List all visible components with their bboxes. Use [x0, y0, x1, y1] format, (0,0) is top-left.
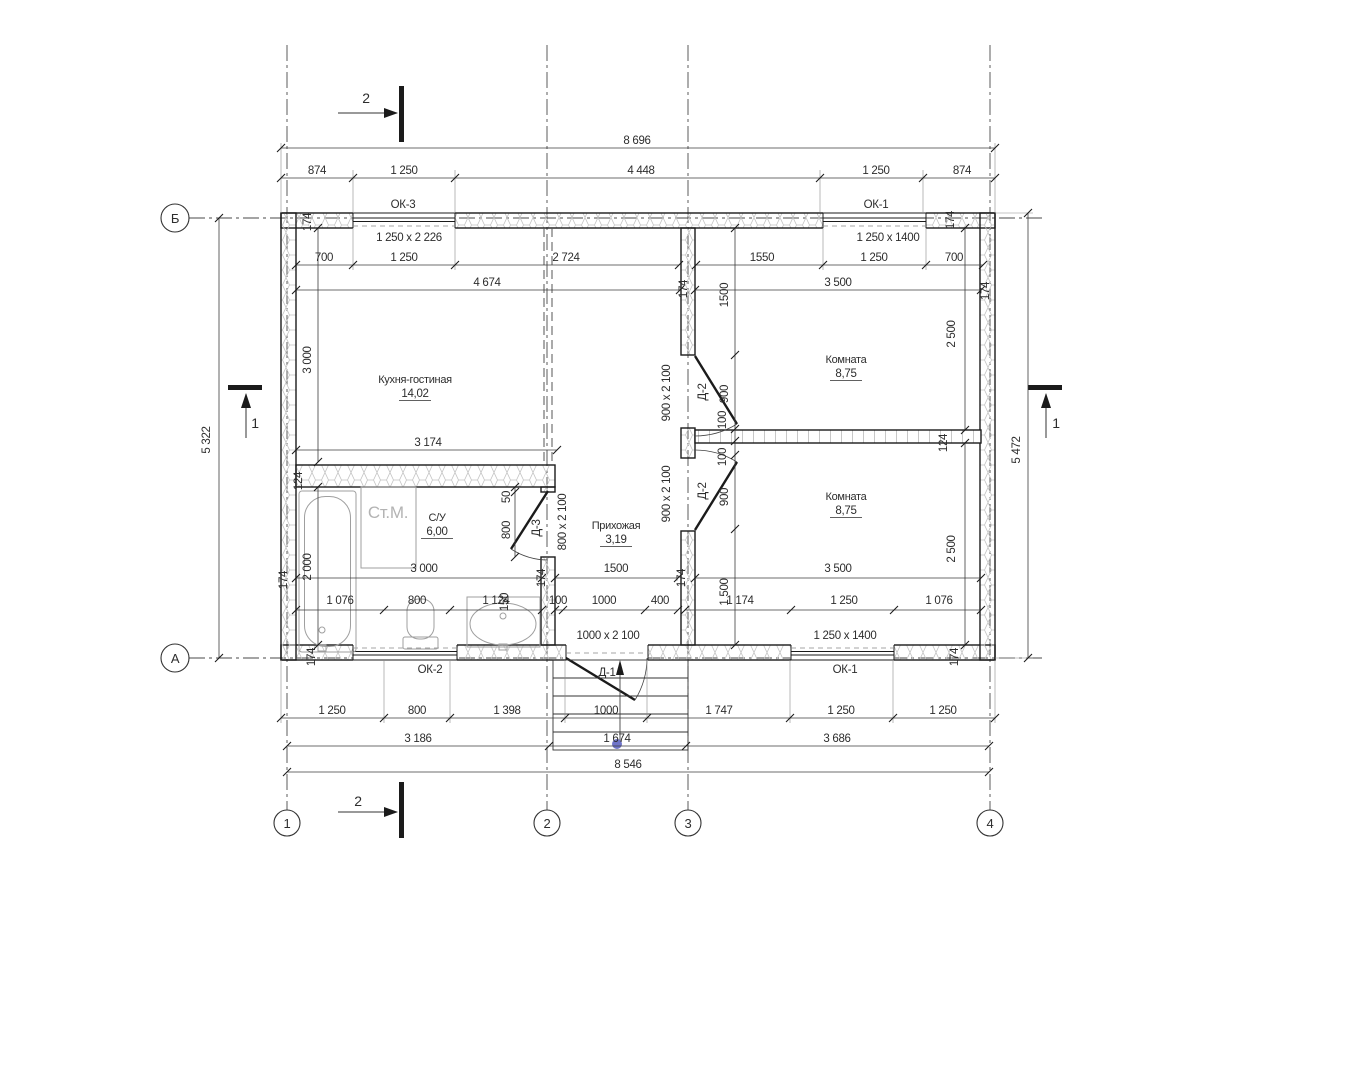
walls [281, 213, 995, 660]
dim: 3 500 [824, 277, 851, 289]
dim: 1 076 [925, 595, 952, 607]
dim: 100 [717, 411, 729, 429]
dim: 4 448 [627, 165, 654, 177]
dim-overall-left: 5 322 [201, 426, 213, 453]
dim: 1500 [604, 563, 628, 575]
dim: 874 [953, 165, 972, 177]
room-name-kitchen: Кухня-гостиная [378, 374, 452, 386]
axis-label: 4 [987, 816, 994, 831]
dim: 700 [315, 252, 333, 264]
door-size: 900 x 2 100 [661, 365, 673, 422]
section-mark-2-bottom [338, 782, 404, 838]
dim-overall-bottom: 8 546 [614, 759, 641, 771]
dim: 3 500 [824, 563, 851, 575]
dim: 900 [719, 488, 731, 506]
dim: 1 747 [705, 705, 732, 717]
dim-wall: 124 [938, 433, 950, 452]
dim-wall: 174 [678, 279, 690, 298]
axis-label: А [171, 651, 180, 666]
section-label: 1 [1052, 415, 1060, 431]
door-tag: Д-2 [697, 383, 709, 400]
dim: 1500 [719, 283, 731, 307]
fixture-label-wm: Ст.М. [368, 503, 408, 522]
room-name-bedroom2: Комната [826, 491, 868, 503]
axis-label: Б [171, 211, 179, 226]
room-area-hall: 3,19 [605, 534, 626, 546]
dim-wall: 174 [980, 281, 992, 300]
dim: 100 [717, 448, 729, 466]
dim: 1 250 [862, 165, 889, 177]
dashed-divider [544, 228, 552, 464]
window-tag-ok1-top: ОК-1 [864, 199, 889, 211]
dim-overall-right: 5 472 [1011, 436, 1023, 463]
dim: 1 250 [390, 252, 417, 264]
wall-axis3-mid [681, 428, 695, 458]
dim: 800 [501, 521, 513, 539]
room-name-hall: Прихожая [592, 520, 641, 532]
dim: 100 [549, 595, 567, 607]
room-name-bedroom1: Комната [826, 354, 868, 366]
dim: 1 250 [318, 705, 345, 717]
window-tag-ok2: ОК-2 [418, 664, 443, 676]
wall-left [281, 213, 296, 660]
dim: 2 000 [302, 553, 314, 580]
wall-right [980, 213, 995, 660]
dim: 1 076 [326, 595, 353, 607]
dim: 4 674 [473, 277, 501, 289]
section-label: 2 [354, 793, 362, 809]
wall-kitchen-bath [296, 465, 555, 487]
window-tag-ok3: ОК-3 [391, 199, 416, 211]
dim: 2 724 [552, 252, 580, 264]
axis-lines [189, 45, 1042, 810]
dim-wall: 174 [536, 568, 548, 587]
dim: 3 186 [404, 733, 431, 745]
dim: 2 500 [946, 320, 958, 347]
dim: 1 250 [929, 705, 956, 717]
washing-machine [361, 487, 416, 568]
room-area-bath: 6,00 [426, 526, 447, 538]
door-tag: Д-2 [697, 482, 709, 499]
dim: 874 [308, 165, 327, 177]
room-area-kitchen: 14,02 [401, 388, 428, 400]
dim: 700 [945, 252, 963, 264]
section-mark-2-top [338, 86, 404, 142]
dim: 3 000 [302, 346, 314, 373]
dim: 1000 [594, 705, 618, 717]
dim: 1 674 [603, 733, 631, 745]
room-name-bath: С/У [428, 512, 446, 524]
door-size: 800 x 2 100 [557, 494, 569, 551]
doors [511, 356, 737, 744]
dim-overall-top: 8 696 [623, 135, 650, 147]
dim: 400 [651, 595, 669, 607]
window-tag-ok1-bottom: ОК-1 [833, 664, 858, 676]
axis-label: 1 [284, 816, 291, 831]
text-labels: 8 6968741 2504 4481 250874ОК-3ОК-11 250 … [171, 90, 1060, 831]
dim: 900 [719, 385, 731, 403]
room-area-bedroom2: 8,75 [835, 505, 856, 517]
door-size-d1: 1000 x 2 100 [577, 630, 640, 642]
dim-wall: 174 [306, 647, 318, 666]
dim: 1 250 [860, 252, 887, 264]
dim: 1 250 [827, 705, 854, 717]
window-size-ok3: 1 250 x 2 226 [376, 232, 442, 244]
dim: 1 250 [830, 595, 857, 607]
dim: 50 [501, 491, 513, 503]
dim: 800 [408, 595, 426, 607]
dim-wall: 174 [945, 210, 957, 229]
door-tag-d1: Д-1 [598, 667, 615, 679]
section-label: 2 [362, 90, 370, 106]
floor-plan-svg: 8 6968741 2504 4481 250874ОК-3ОК-11 250 … [0, 0, 1347, 1080]
window-size-ok1-bottom: 1 250 x 1400 [814, 630, 877, 642]
dim: 1 174 [726, 595, 754, 607]
window-size-ok1-top: 1 250 x 1400 [857, 232, 920, 244]
dim: 3 174 [414, 437, 442, 449]
axis-label: 2 [544, 816, 551, 831]
dim: 3 000 [410, 563, 437, 575]
door-tag: Д-3 [531, 519, 543, 536]
dim: 1 250 [390, 165, 417, 177]
door-size: 900 x 2 100 [661, 466, 673, 523]
dim-wall: 174 [302, 212, 314, 231]
floor-plan-canvas: 8 6968741 2504 4481 250874ОК-3ОК-11 250 … [0, 0, 1347, 1080]
dim-wall: 174 [949, 647, 961, 666]
dim-wall: 124 [293, 471, 305, 490]
section-label: 1 [251, 415, 259, 431]
dim: 1000 [592, 595, 616, 607]
dim: 3 686 [823, 733, 850, 745]
dim: 2 500 [946, 535, 958, 562]
dim-wall: 174 [676, 568, 688, 587]
room-area-bedroom1: 8,75 [835, 368, 856, 380]
dim: 1 124 [482, 595, 510, 607]
dim: 1550 [750, 252, 774, 264]
dim-wall: 174 [278, 570, 290, 589]
axis-label: 3 [685, 816, 692, 831]
dim: 800 [408, 705, 426, 717]
dim: 1 398 [493, 705, 520, 717]
